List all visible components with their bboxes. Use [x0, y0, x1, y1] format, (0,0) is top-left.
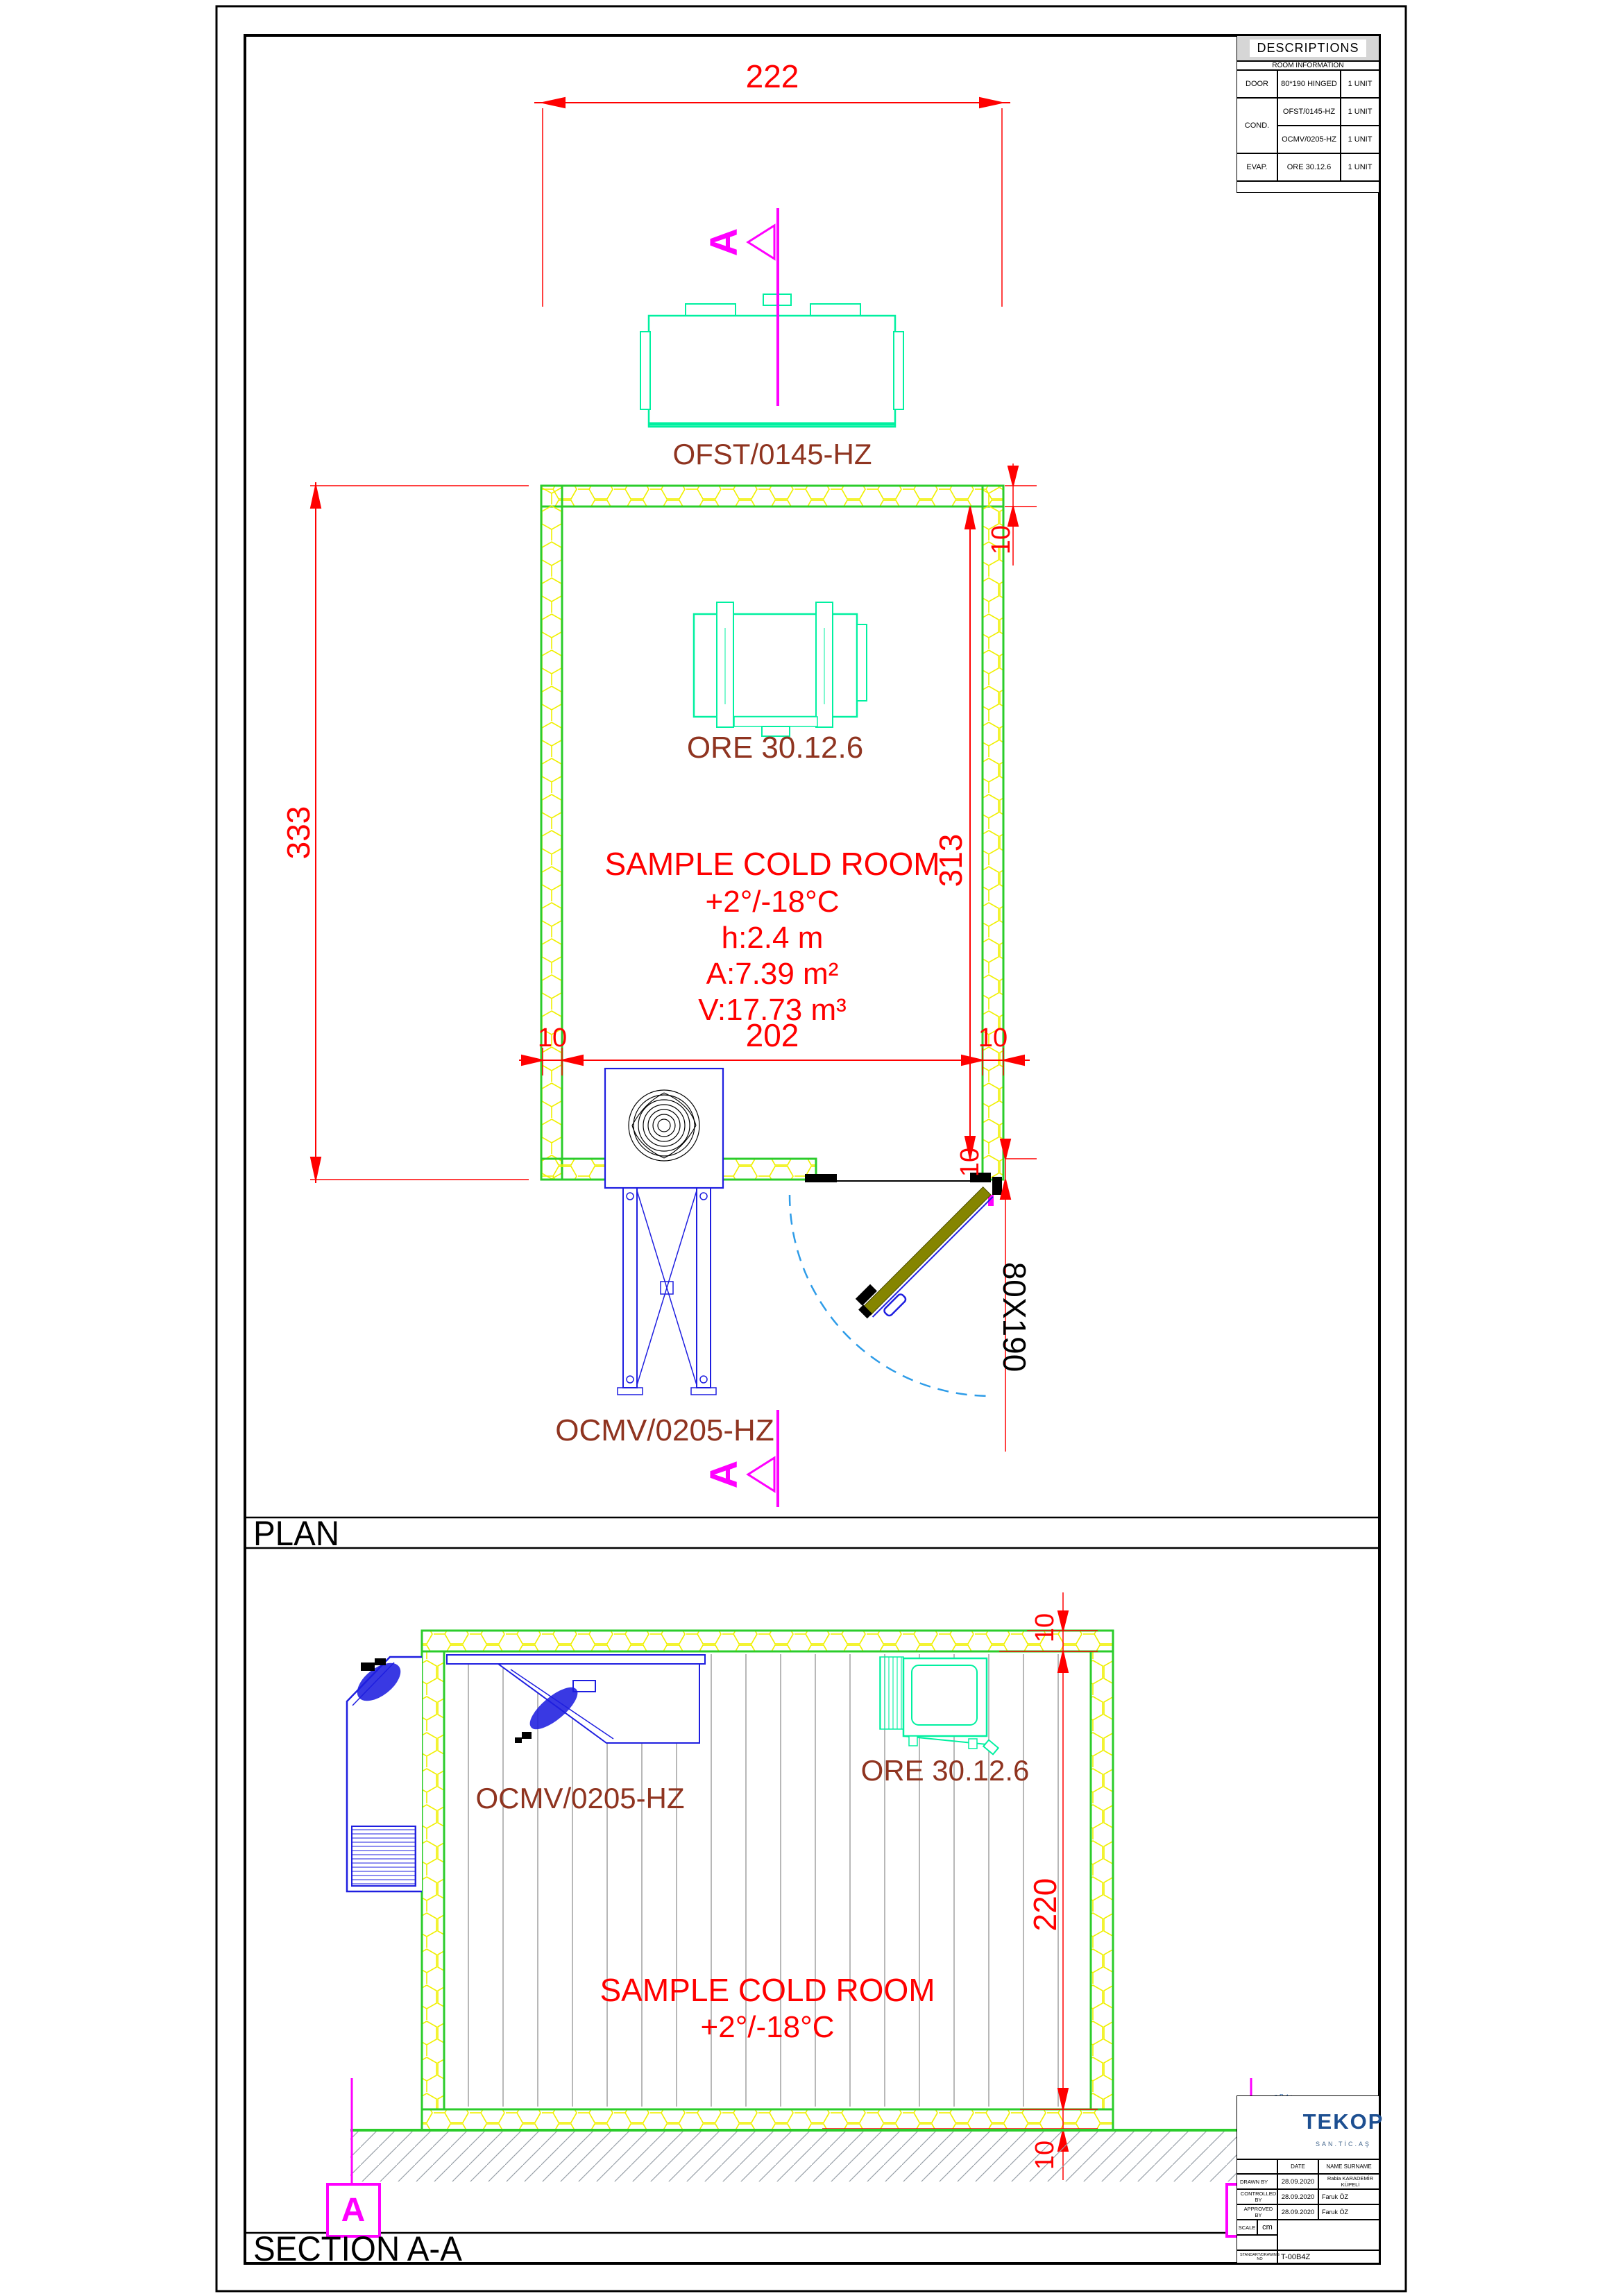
plan-title: PLAN — [253, 1513, 339, 1554]
drawing-no-label: STANDART/DRAWING NO — [1237, 2250, 1277, 2263]
section-marker-left-letter: A — [341, 2194, 366, 2227]
condenser-grille — [352, 1826, 416, 1886]
dim-top-wall: 10 — [988, 525, 1014, 554]
section-evaporator-label: ORE 30.12.6 — [861, 1756, 1030, 1785]
dim-width-overall: 222 — [746, 60, 799, 92]
dim-left-wall: 10 — [538, 1025, 567, 1051]
drawing-no-value: T-00B4Z — [1277, 2250, 1379, 2263]
desc-cond2-value: OCMV/0205-HZ — [1277, 126, 1341, 153]
door-leaf — [851, 1179, 1001, 1329]
scale-label: SCALE — [1237, 2220, 1257, 2235]
door-size-label: 80X190 — [999, 1262, 1030, 1372]
dim-floor-panel: 10 — [1032, 2141, 1058, 2170]
section-monoblock-label: OCMV/0205-HZ — [475, 1784, 684, 1813]
section-view — [328, 1592, 1279, 2236]
descriptions-table: DESCRIPTIONS ROOM INFORMATION DOOR 80*19… — [1237, 35, 1379, 193]
header-name-surname: NAME SURNAME — [1318, 2159, 1379, 2174]
drawn-by-name: Rabia KARADEMİR KÜPELİ — [1318, 2174, 1379, 2189]
plan-condenser-label: OFST/0145-HZ — [672, 440, 872, 469]
dim-right-wall: 10 — [978, 1025, 1008, 1051]
dim-ceiling-panel: 10 — [1032, 1613, 1058, 1642]
section-marker-bottom-letter: A — [704, 1461, 743, 1488]
desc-door-value: 80*190 HINGED — [1277, 70, 1341, 98]
approved-by-name: Faruk ÖZ — [1318, 2204, 1379, 2220]
brand-name: TEKOP — [1303, 2109, 1384, 2134]
desc-evap-category: EVAP. — [1237, 153, 1277, 181]
dim-interior-height: 220 — [1029, 1878, 1061, 1932]
descriptions-header: DESCRIPTIONS — [1237, 35, 1379, 61]
desc-evap-qty: 1 UNIT — [1341, 153, 1379, 181]
desc-empty-row — [1237, 181, 1379, 193]
approved-by-date: 28.09.2020 — [1277, 2204, 1318, 2220]
plan-evaporator-label: ORE 30.12.6 — [687, 733, 863, 763]
header-date: DATE — [1277, 2159, 1318, 2174]
section-room-name: SAMPLE COLD ROOM — [600, 1974, 935, 2006]
descriptions-title: DESCRIPTIONS — [1250, 40, 1366, 57]
approved-by-label: APPROVED BY — [1237, 2204, 1277, 2220]
plan-door — [790, 1173, 1002, 1396]
drawn-by-label: DRAWN BY — [1237, 2174, 1277, 2189]
section-ground — [350, 2130, 1252, 2182]
desc-cond1-value: OFST/0145-HZ — [1277, 98, 1341, 126]
header-empty-cell — [1237, 2159, 1277, 2174]
section-room-temperature: +2°/-18°C — [701, 2012, 835, 2043]
drawn-by-date: 28.09.2020 — [1277, 2174, 1318, 2189]
desc-cond-category: COND. — [1237, 98, 1277, 153]
controlled-by-date: 28.09.2020 — [1277, 2189, 1318, 2204]
room-temperature: +2°/-18°C — [706, 887, 840, 917]
plan-monoblock-ocmv — [605, 1069, 723, 1395]
scale-value: cm — [1257, 2220, 1277, 2235]
controlled-by-name: Faruk ÖZ — [1318, 2189, 1379, 2204]
plan-view — [310, 98, 1037, 1507]
desc-door-qty: 1 UNIT — [1341, 70, 1379, 98]
dim-door-wall: 10 — [957, 1148, 983, 1177]
section-condenser-exterior — [347, 1656, 422, 1891]
scale-extra-cell — [1277, 2220, 1379, 2250]
desc-cond2-qty: 1 UNIT — [1341, 126, 1379, 153]
ground-hatch — [350, 2132, 1252, 2182]
dim-depth-overall: 333 — [282, 806, 314, 860]
cad-linework: REFRIGERATION — [0, 0, 1623, 2296]
evaporator-fins — [880, 1657, 903, 1729]
room-height: h:2.4 m — [722, 923, 824, 953]
room-name: SAMPLE COLD ROOM — [604, 848, 940, 880]
plan-evaporator-ore — [694, 602, 867, 736]
door-jamb-hardware — [805, 1174, 837, 1182]
brand-subtitle: SAN.TİC.AŞ — [1316, 2141, 1371, 2148]
desc-evap-value: ORE 30.12.6 — [1277, 153, 1341, 181]
room-volume: V:17.73 m³ — [698, 995, 847, 1026]
plan-monoblock-label: OCMV/0205-HZ — [555, 1415, 774, 1446]
controlled-by-label: CONTROLLED BY — [1237, 2189, 1277, 2204]
section-marker-top-letter: A — [704, 228, 743, 256]
projection-symbol-cell — [1237, 2235, 1277, 2250]
room-information-header: ROOM INFORMATION — [1237, 61, 1379, 70]
desc-door-category: DOOR — [1237, 70, 1277, 98]
section-title: SECTION A-A — [253, 2229, 462, 2269]
desc-cond1-qty: 1 UNIT — [1341, 98, 1379, 126]
room-area: A:7.39 m² — [706, 959, 839, 989]
plan-condenser-ofst — [640, 294, 903, 427]
